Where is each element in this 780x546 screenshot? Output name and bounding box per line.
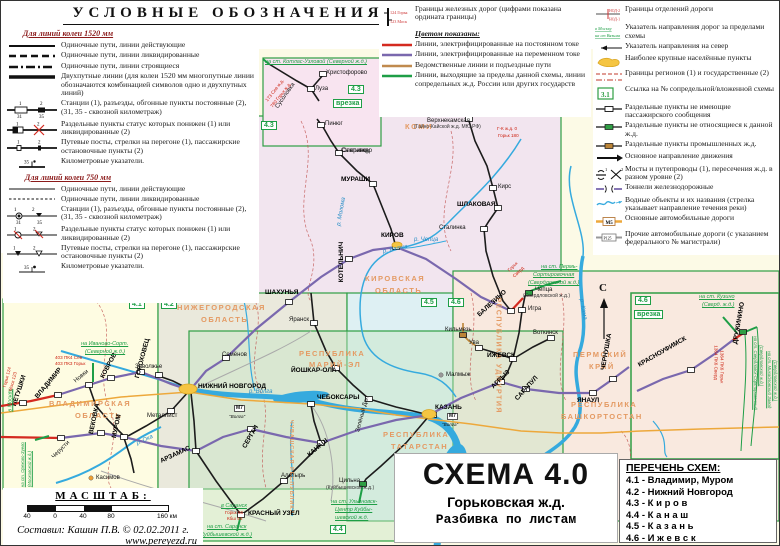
station-marker	[476, 346, 483, 351]
legend-item: Линии, электрифицированные на постоянном…	[379, 40, 591, 49]
city-icon	[593, 54, 625, 67]
station-marker	[238, 513, 245, 518]
svg-text:35: 35	[24, 160, 30, 165]
legend-gauge-1520-header: Для линий колеи 1520 мм	[13, 30, 123, 39]
svg-text:М5: М5	[606, 221, 614, 226]
stg-icon	[593, 121, 625, 132]
legend-item: Ведомственные линии и подъездные пути	[379, 61, 591, 70]
l-dashdot-icon	[3, 62, 61, 71]
scale-title: МАСШТАБ:	[3, 490, 203, 502]
station-marker	[460, 333, 467, 338]
svg-text:1: 1	[14, 228, 17, 233]
legend-item: Водные объекты и их названия (стрелка ук…	[593, 196, 779, 213]
l-km-icon: 35	[3, 157, 61, 171]
station-marker	[308, 87, 315, 92]
city-dot	[439, 373, 443, 377]
station-marker	[223, 356, 230, 361]
svg-text:2: 2	[40, 102, 43, 107]
legend-item-label: Станции (1), разъезды, обгонные пункты п…	[61, 205, 259, 222]
legend-item: Р125Прочие автомобильные дороги (с указа…	[593, 230, 779, 247]
legend-item: в Москвуна ст ВязьмаУказатель направлени…	[593, 23, 779, 40]
legend-item: Одиночные пути, линии ликвидированные	[3, 195, 259, 204]
station-marker	[490, 186, 497, 191]
legend-item: 12Раздельные пункты статус которых пониж…	[3, 120, 259, 137]
svg-text:1: 1	[19, 102, 22, 107]
scale-tick: 80	[107, 513, 114, 520]
scheme-title-block: СХЕМА 4.0 Горьковская ж.д. Разбивка по л…	[394, 453, 618, 543]
legend-right-panel: НОД-2НОД-1Границы отделений дорогив Моск…	[593, 3, 779, 255]
station-marker	[740, 330, 747, 335]
svg-text:1: 1	[13, 246, 16, 251]
scale-tick: 40	[23, 513, 30, 520]
legend-item-label: Основные автомобильные дороги	[625, 214, 734, 223]
major-city-blob	[392, 242, 402, 248]
station-marker	[311, 321, 318, 326]
legend-item-label: Линии, выходящие за пределы данной схемы…	[415, 71, 591, 88]
legend-right-rows: НОД-2НОД-1Границы отделений дорогив Моск…	[593, 5, 779, 247]
svg-text:Р125: Р125	[604, 236, 612, 240]
legend-item: Одиночные пути, линии строящиеся	[3, 62, 259, 71]
svg-text:НОД-1: НОД-1	[609, 17, 620, 21]
svg-text:31: 31	[17, 115, 23, 118]
svg-text:2: 2	[621, 167, 623, 172]
station-marker	[168, 409, 175, 414]
legend-item: Раздельные пункты промышленных ж.д.	[593, 140, 779, 151]
l-thick-icon	[3, 72, 61, 81]
station-marker	[320, 72, 327, 77]
legend-item-label: Указатель направления на север	[625, 42, 728, 51]
svg-text:2: 2	[38, 141, 41, 146]
scheme-list-item: 4.6 - И ж е в с к	[626, 533, 776, 545]
legend-item-label: Водные объекты и их названия (стрелка ук…	[625, 196, 779, 213]
legend-item: 12Путевые посты, стрелки на перегоне (1)…	[3, 244, 259, 261]
city-dot	[89, 476, 93, 480]
station-marker	[318, 123, 325, 128]
c-violet-icon	[379, 50, 415, 59]
author-credit: Составил: Кашин П.В. © 02.02.2011 г.	[3, 525, 203, 536]
legend-item-label: Тоннели железнодорожные	[625, 183, 713, 192]
legend-item-label: Раздельные пункты статус которых понижен…	[61, 225, 259, 242]
legend-item: Раздельные пункты не имеющие пассажирско…	[593, 103, 779, 120]
svg-text:3.1: 3.1	[601, 91, 610, 99]
legend-item-label: Наиболее крупные населённые пункты	[625, 54, 751, 63]
stbr-icon	[593, 140, 625, 151]
dirs-icon: в Москвуна ст Вязьма	[593, 23, 625, 39]
legend-item-label: Одиночные пути, линии строящиеся	[61, 62, 179, 71]
scale-block: МАСШТАБ: 4004080160 км Составил: Кашин П…	[3, 488, 203, 546]
bridge-icon: 12	[593, 165, 625, 181]
station-marker	[318, 441, 325, 446]
station-marker	[281, 479, 288, 484]
c-green-icon	[379, 71, 415, 80]
station-marker	[336, 151, 343, 156]
legend-item-label: Линии, электрифицированные на постоянном…	[415, 40, 579, 49]
legend-item-label: Основное направление движения	[625, 152, 733, 161]
legend-item: Раздельные пункты не относящиеся к данно…	[593, 121, 779, 138]
legend-item: Основное направление движения	[593, 152, 779, 163]
l-solid-icon	[3, 41, 61, 50]
station-marker	[610, 377, 617, 382]
legend-item-label: Мосты и путепроводы (1), пересечения ж.д…	[625, 165, 779, 182]
legend-middle-rows: 124 Горьк123 МоскГраницы железных дорог …	[379, 5, 591, 89]
scheme-list-title: ПЕРЕЧЕНЬ СХЕМ:	[626, 462, 776, 474]
railway-scheme-document: 4.14.24.3врезка4.34.54.64.6врезка4.4РЕСП…	[0, 0, 780, 546]
svg-text:31: 31	[16, 221, 22, 224]
scheme-list-item: 4.4 - К а н а ш	[626, 510, 776, 522]
n-solid-icon	[3, 185, 61, 192]
scheme-list-item: 4.5 - К а з а н ь	[626, 521, 776, 533]
station-marker	[360, 482, 367, 487]
scale-tick: 0	[53, 513, 57, 520]
legend-item: НОД-2НОД-1Границы отделений дороги	[593, 5, 779, 22]
legend-item: Линии, электрифицированные на переменном…	[379, 50, 591, 59]
station-marker	[519, 308, 526, 313]
legend-item: 123135Станции (1), разъезды, обгонные пу…	[3, 99, 259, 118]
svg-text:на ст Вязьма: на ст Вязьма	[595, 33, 621, 38]
svg-text:123 Моск: 123 Моск	[390, 19, 408, 24]
svg-text:2: 2	[32, 208, 35, 213]
n-low-icon: 12	[3, 225, 61, 242]
scale-tick: 40	[79, 513, 86, 520]
scale-bar	[27, 505, 169, 512]
legend-item-label: Границы регионов (1) и государственные (…	[625, 69, 769, 78]
legend-item-label: Одиночные пути, линии ликвидированные	[61, 51, 199, 60]
station-marker	[121, 435, 128, 440]
station-marker	[346, 257, 353, 262]
major-city-blob	[179, 384, 197, 394]
legend-item: Линии, выходящие за пределы данной схемы…	[379, 71, 591, 88]
station-marker	[548, 336, 555, 341]
scheme-list-items: 4.1 - Владимир, Муром4.2 - Нижний Новгор…	[626, 475, 776, 544]
rr-border-icon: 124 Горьк123 Моск	[379, 5, 415, 28]
legend-item: Одиночные пути, линии действующие	[3, 185, 259, 194]
legend-item-label: Границы железных дорог (цифрами показана…	[415, 5, 591, 22]
legend-item-label: Указатель направления дорог за пределами…	[625, 23, 779, 40]
svg-text:2: 2	[37, 122, 40, 127]
station-marker	[495, 206, 502, 211]
legend-item-label: Путевые посты, стрелки на перегоне (1), …	[61, 244, 259, 261]
tun-icon	[593, 183, 625, 194]
stw-icon	[593, 103, 625, 114]
legend-item-label: Двухпутные линии (для колеи 1520 мм мног…	[61, 72, 259, 98]
wat-icon	[593, 196, 625, 209]
svg-text:35: 35	[24, 266, 30, 271]
scheme-number: СХЕМА 4.0	[395, 458, 617, 492]
station-marker	[156, 373, 163, 378]
station-marker	[498, 380, 505, 385]
station-marker	[138, 370, 145, 375]
svg-text:в Москву: в Москву	[595, 26, 612, 31]
legend-item: Наиболее крупные населённые пункты	[593, 54, 779, 67]
scale-ticks: 4004080160 км	[27, 513, 227, 521]
scale-tick: 160 км	[157, 513, 177, 520]
legend-item: Границы регионов (1) и государственные (…	[593, 69, 779, 84]
legend-item: 123135Станции (1), разъезды, обгонные пу…	[3, 205, 259, 224]
legend-1520-rows: Одиночные пути, линии действующиеОдиночн…	[3, 41, 259, 171]
scheme-list: ПЕРЕЧЕНЬ СХЕМ: 4.1 - Владимир, Муром4.2 …	[619, 459, 777, 543]
station-marker	[333, 366, 340, 371]
station-marker	[523, 387, 530, 392]
legend-750-rows: Одиночные пути, линии действующиеОдиночн…	[3, 185, 259, 277]
station-marker	[108, 376, 115, 381]
station-marker	[308, 402, 315, 407]
move-icon	[593, 152, 625, 163]
station-marker	[510, 357, 517, 362]
legend-item-label: Прочие автомобильные дороги (с указанием…	[625, 230, 779, 247]
n-km-icon: 35	[3, 262, 61, 276]
n-dash-icon	[3, 195, 61, 202]
scheme-subtitle: Разбивка по листам	[395, 512, 617, 527]
station-marker	[20, 401, 27, 406]
legend-item: Тоннели железнодорожные	[593, 183, 779, 194]
station-marker	[98, 431, 105, 436]
website: www.pereyezd.ru	[3, 536, 203, 546]
legend-item-label: Километровые указатели.	[61, 262, 144, 271]
svg-text:35: 35	[37, 221, 43, 224]
station-marker	[286, 300, 293, 305]
legend-item-label: Станции (1), разъезды, обгонные пункты п…	[61, 99, 259, 116]
legend-item: 3.1Ссылка на № сопредельной/вложенной сх…	[593, 85, 779, 101]
svg-text:1: 1	[14, 208, 17, 213]
legend-item: 12Раздельные пункты статус которых пониж…	[3, 225, 259, 242]
legend-item: 12Путевые посты, стрелки на перегоне (1)…	[3, 138, 259, 155]
scheme-list-item: 4.1 - Владимир, Муром	[626, 475, 776, 487]
station-marker	[366, 397, 373, 402]
svg-text:НОД-2: НОД-2	[609, 9, 620, 13]
legend-item: 12Мосты и путепроводы (1), пересечения ж…	[593, 165, 779, 182]
legend-left-panel: Для линий колеи 1520 мм Одиночные пути, …	[3, 27, 259, 303]
legend-item-label: Линии, электрифицированные на переменном…	[415, 50, 580, 59]
station-marker	[590, 391, 597, 396]
scheme-list-item: 4.3 - К и р о в	[626, 498, 776, 510]
legend-item-label: Раздельные пункты промышленных ж.д.	[625, 140, 756, 149]
legend-item: 35Километровые указатели.	[3, 157, 259, 171]
l-post-icon: 12	[3, 138, 61, 155]
legend-item-label: Ссылка на № сопредельной/вложенной схемы	[625, 85, 774, 94]
legend-item-label: Раздельные пункты не относящиеся к данно…	[625, 121, 779, 138]
legend-item: 124 Горьк123 МоскГраницы железных дорог …	[379, 5, 591, 28]
station-marker	[508, 309, 515, 314]
legend-item: Двухпутные линии (для колеи 1520 мм мног…	[3, 72, 259, 98]
north-icon	[593, 42, 625, 53]
railway-name: Горьковская ж.д.	[395, 494, 617, 510]
legend-item-label: Границы отделений дороги	[625, 5, 713, 14]
svg-text:1: 1	[605, 167, 607, 172]
legend-item: Одиночные пути, линии ликвидированные	[3, 51, 259, 60]
legend-middle-panel: 124 Горьк123 МоскГраницы железных дорог …	[379, 3, 591, 117]
legend-item-label: Путевые посты, стрелки на перегоне (1), …	[61, 138, 259, 155]
n-sta-icon: 123135	[3, 205, 61, 224]
svg-text:1: 1	[17, 141, 20, 146]
legend-item-label: Километровые указатели.	[61, 157, 144, 166]
l-dash-icon	[3, 51, 61, 60]
legend-subheading: Цветом показаны:	[415, 29, 591, 38]
l-low-icon: 12	[3, 120, 61, 137]
legend-item-label: Ведомственные линии и подъездные пути	[415, 61, 551, 70]
rdo-icon: Р125	[593, 230, 625, 244]
svg-text:35: 35	[39, 115, 45, 118]
station-marker	[248, 427, 255, 432]
station-marker	[466, 117, 473, 122]
legend-gauge-750-header: Для линий колеи 750 мм	[13, 174, 123, 183]
station-marker	[55, 393, 62, 398]
station-marker	[58, 436, 65, 441]
l-sta-icon: 123135	[3, 99, 61, 118]
c-brown-icon	[379, 61, 415, 70]
station-marker	[481, 227, 488, 232]
station-marker	[370, 182, 377, 187]
legend-item: М5Основные автомобильные дороги	[593, 214, 779, 228]
ref-icon: 3.1	[593, 85, 625, 101]
legend-item-label: Одиночные пути, линии ликвидированные	[61, 195, 199, 204]
n-post-icon: 12	[3, 244, 61, 261]
regb-icon	[593, 69, 625, 84]
station-marker	[86, 383, 93, 388]
station-marker	[193, 449, 200, 454]
scheme-list-item: 4.2 - Нижний Новгород	[626, 487, 776, 499]
legend-item-label: Одиночные пути, линии действующие	[61, 41, 185, 50]
legend-item-label: Одиночные пути, линии действующие	[61, 185, 185, 194]
rdm-icon: М5	[593, 214, 625, 228]
city-dot	[365, 149, 369, 153]
legend-title: УСЛОВНЫЕ ОБОЗНАЧЕНИЯ	[63, 5, 393, 25]
station-marker	[526, 291, 533, 296]
c-red-icon	[379, 40, 415, 49]
legend-item: Указатель направления на север	[593, 42, 779, 53]
legend-item-label: Раздельные пункты не имеющие пассажирско…	[625, 103, 779, 120]
legend-item: 35Километровые указатели.	[3, 262, 259, 276]
legend-item-label: Раздельные пункты статус которых понижен…	[61, 120, 259, 137]
major-city-blob	[422, 410, 436, 419]
svg-text:124 Горьк: 124 Горьк	[390, 10, 408, 15]
station-marker	[688, 368, 695, 373]
nod-icon: НОД-2НОД-1	[593, 5, 625, 22]
legend-item: Одиночные пути, линии действующие	[3, 41, 259, 50]
